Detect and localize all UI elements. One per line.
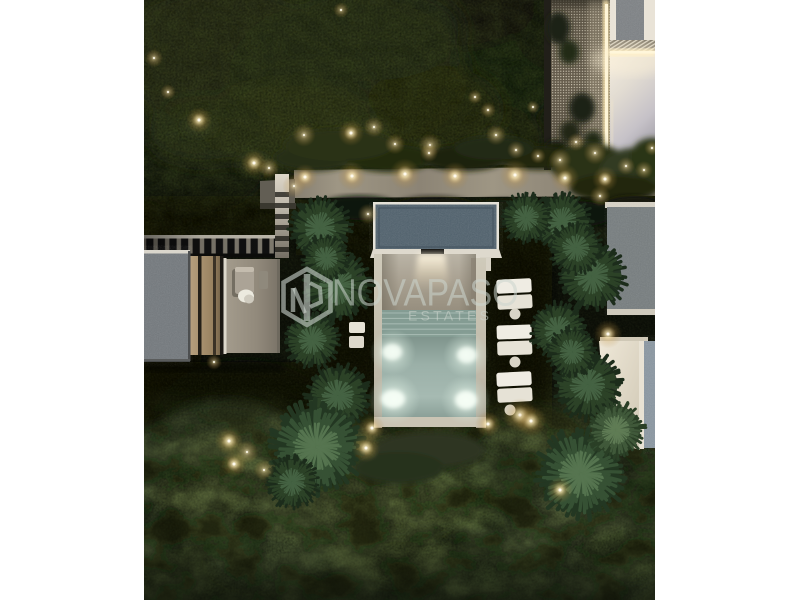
- svg-text:ESTATES: ESTATES: [408, 308, 492, 324]
